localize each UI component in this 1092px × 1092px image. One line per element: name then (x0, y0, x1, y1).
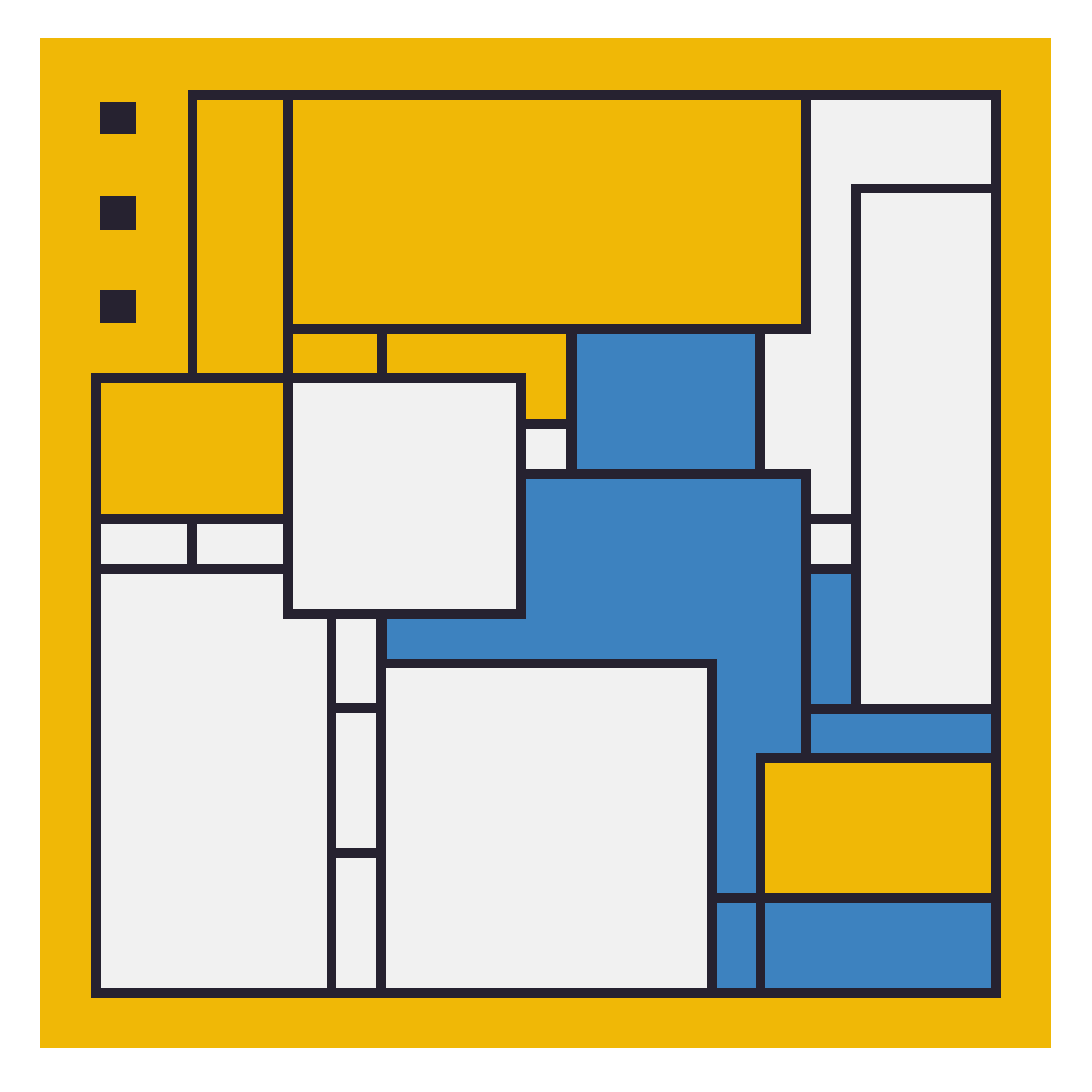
yellow-tab (526, 373, 566, 419)
white-band-top-right (811, 100, 991, 184)
blue-column-mid-lower (717, 753, 756, 893)
yellow-block-bottom-right (765, 763, 991, 893)
white-strip-cell-3 (336, 858, 376, 988)
yellow-column-tall (197, 100, 283, 373)
yellow-block-left (101, 383, 283, 514)
white-block-inner-right (861, 193, 991, 704)
blue-bar-right (811, 714, 991, 753)
artwork-canvas (0, 0, 1092, 1092)
white-strip-cell-1 (336, 619, 376, 703)
white-cell-small-right (811, 524, 851, 564)
white-square-center (293, 383, 516, 609)
blue-block-top (577, 334, 755, 469)
white-block-bottom-center (386, 668, 707, 988)
accent-square-2 (100, 196, 136, 230)
accent-square-3 (100, 290, 136, 323)
blue-band-center (387, 619, 707, 659)
white-block-bottom-left-ext (283, 619, 327, 988)
yellow-band-right (387, 334, 566, 373)
yellow-banner (293, 100, 801, 324)
white-cell-small-mid (526, 429, 566, 469)
white-column-right (811, 184, 851, 514)
yellow-band-left (293, 334, 377, 373)
white-notch-right (765, 334, 811, 469)
blue-cell-bottom-small (717, 903, 756, 988)
blue-block-bottom-right (765, 903, 991, 988)
white-strip-cell-2 (336, 713, 376, 848)
accent-square-1 (100, 102, 136, 134)
white-cell-small-left-1 (101, 524, 187, 564)
white-block-bottom-left (101, 574, 283, 988)
blue-column-mid-upper (717, 659, 801, 753)
blue-cell-right-column (811, 574, 851, 704)
white-cell-small-left-2 (197, 524, 283, 564)
